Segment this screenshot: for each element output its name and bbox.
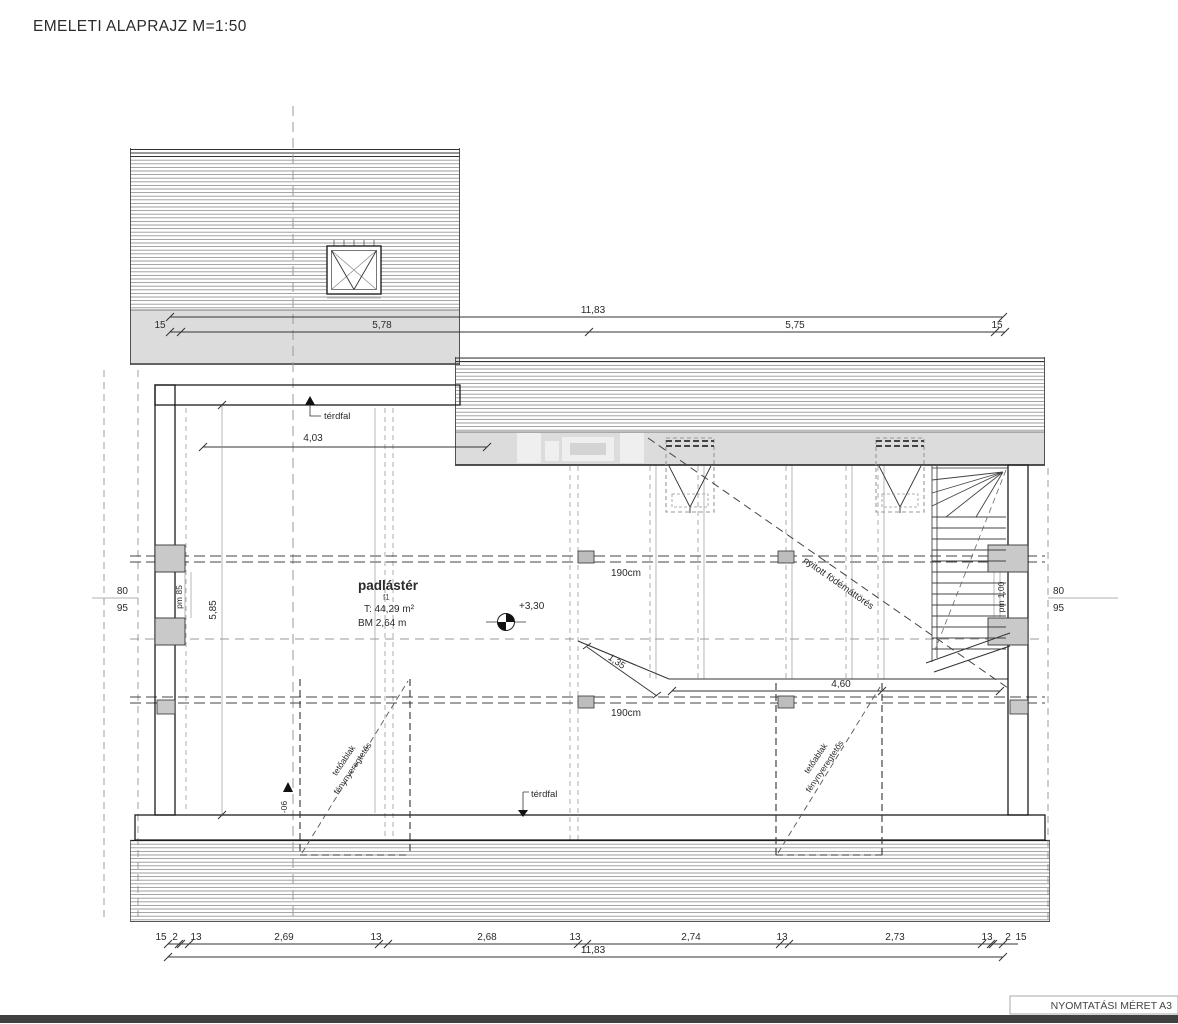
roof-plane-top-right [455,357,1045,465]
parapet-label-left: pm 85 [174,585,184,609]
knee-wall-label-top: térdfal [305,396,350,422]
room-code: f1 [383,593,390,602]
dimension-right: 80 95 pm 1,00 [996,581,1118,614]
slab-opening-label: nyitott födémáttörés [801,555,876,612]
dormer-opening-symbol-left [669,466,711,513]
eaves-band-top-right [455,432,1045,465]
room-label: padlástér f1 T: 44,29 m² BM 2,64 m [358,578,419,629]
joist-lines [375,408,884,813]
parapet-label-right: pm 1,00 [996,581,1006,612]
dimension-left: 4,03 5,85 80 95 pm 85 [92,401,491,819]
wall-block-left [157,700,175,714]
slope-arrow-icon [283,782,293,792]
room-area: T: 44,29 m² [364,604,415,615]
dim-top-seg-1: 5,78 [372,320,392,331]
post-1 [578,551,594,563]
wall-pier-left-lower [155,618,185,645]
dim-top-overall: 11,83 [581,305,606,316]
dim-bot-seg-0: 15 [155,932,167,943]
dim-interior-depth: 5,85 [208,600,219,620]
footer: NYOMTATÁSI MÉRET A3 [0,996,1178,1023]
dim-bot-seg-3: 2,69 [274,932,294,943]
arrow-down-icon [518,810,528,817]
dim-top-seg-3: 15 [991,320,1003,331]
level-marker: +3,30 [486,601,545,631]
dim-bot-seg-12: 15 [1015,932,1027,943]
dim-top-seg-2: 5,75 [785,320,805,331]
dim-bot-seg-11: 2 [1005,932,1011,943]
dim-bot-seg-4: 13 [370,932,382,943]
dim-top-seg-0: 15 [154,320,166,331]
headroom-label-1: 190cm [611,568,641,579]
drawing-sheet: EMELETI ALAPRAJZ M=1:50 [0,0,1178,1024]
wall-block-right [1010,700,1028,714]
headroom-lines: 190cm 190cm [130,556,1045,719]
dim-bot-seg-6: 13 [569,932,581,943]
dim-bot-seg-2: 13 [190,932,202,943]
dim-bot-seg-7: 2,74 [681,932,701,943]
roof-hatch-top-right [455,357,1045,432]
post-3 [578,696,594,708]
dim-right-80: 80 [1053,586,1065,597]
dim-opening-diagonal: 1,35 [606,652,627,672]
dim-opening-length: 4,60 [831,679,851,690]
level-value: +3,30 [519,601,545,612]
dim-bot-seg-10: 13 [981,932,993,943]
knee-wall-text-bottom: térdfal [531,789,557,800]
dim-bot-seg-9: 2,73 [885,932,905,943]
room-height: BM 2,64 m [358,618,406,629]
dormer-opening-symbol-right [879,466,921,513]
roof-plane-bottom [130,840,1050,922]
headroom-label-2: 190cm [611,708,641,719]
slope-marker-text: -06 [279,801,289,814]
dim-left-95: 95 [117,603,129,614]
floor-plan: EMELETI ALAPRAJZ M=1:50 [0,0,1178,1024]
knee-wall-text-top: térdfal [324,411,350,422]
page-title: EMELETI ALAPRAJZ M=1:50 [33,18,247,35]
stair-winders [932,472,1003,517]
watermark-logo [517,433,644,463]
post-4 [778,696,794,708]
slab-opening: nyitott födémáttörés [648,438,1008,688]
dim-right-95: 95 [1053,603,1065,614]
stair-stringers [932,466,937,662]
dimension-opening: 1,35 4,60 [583,643,1004,698]
roof-plane-top-left [130,148,460,365]
wall-bottom [135,815,1045,840]
footer-bar [0,1015,1178,1023]
dim-bot-overall: 11,83 [581,945,606,956]
rafter-axes-right [650,466,878,679]
dim-bot-seg-1: 2 [172,932,178,943]
eaves-band-top-left [130,310,460,365]
dim-interior-width: 4,03 [303,433,323,444]
niche-left [185,572,191,618]
dim-bot-seg-5: 2,68 [477,932,497,943]
print-size-label: NYOMTATÁSI MÉRET A3 [1051,999,1173,1012]
roof-window-rect-left: tetőablak fénynyeregtetős [300,679,410,855]
wall-left [155,385,175,815]
slab-opening-edge [578,641,1008,679]
knee-wall-label-bottom: térdfal [518,789,557,817]
dimension-bottom: 15 2 13 2,69 13 2,68 13 2,74 13 2,73 13 … [155,932,1027,961]
roof-window-top [327,240,381,298]
slope-marker: -06 [279,782,293,813]
roof-hatch-top-left [130,148,460,310]
wall-pier-left-upper [155,545,185,572]
dim-left-80: 80 [117,586,129,597]
dim-bot-seg-8: 13 [776,932,788,943]
wall-pier-right-upper [988,545,1028,572]
room-name: padlástér [358,578,419,593]
slab-opening-diagonal [648,438,1008,688]
roof-hatch-bottom [130,840,1050,922]
arrow-up-icon [305,396,315,405]
post-2 [778,551,794,563]
roof-window-rect-right: tetőablak fénynyeregtetős [776,683,882,855]
wall-pier-right-lower [988,618,1028,645]
